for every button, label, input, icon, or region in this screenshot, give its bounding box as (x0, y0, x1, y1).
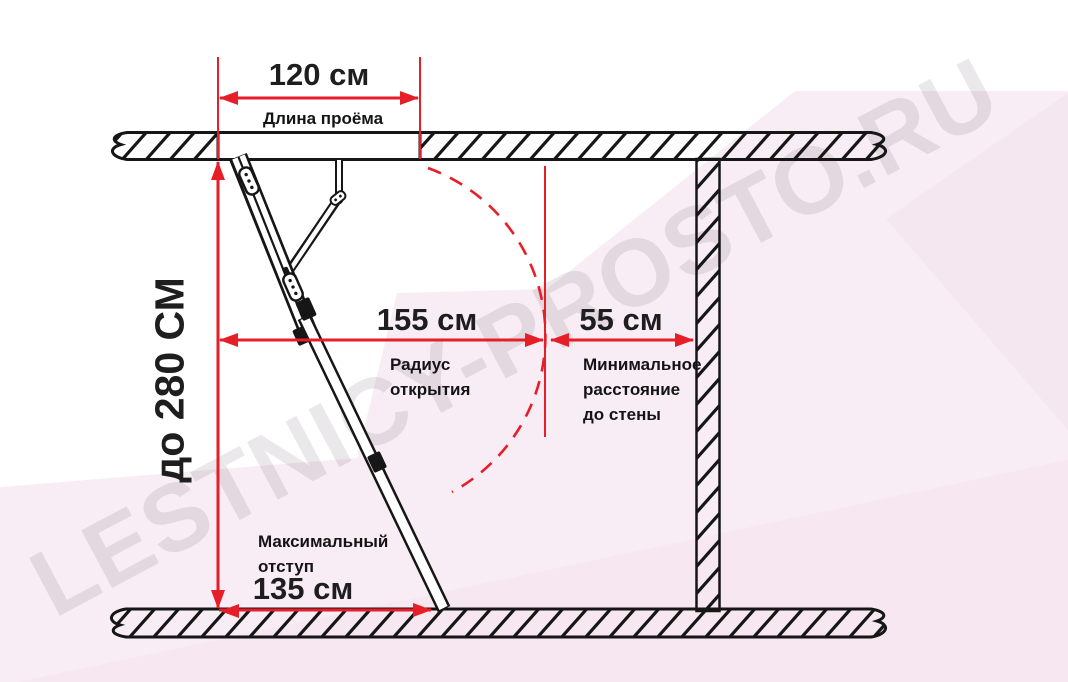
opening-label: Длина проёма (263, 106, 383, 131)
radius-label: Радиус открытия (390, 352, 470, 402)
height-value: до 280 СМ (147, 277, 194, 482)
attic-ladder-dimension-diagram: LESTNICY-PROSTO.RU (0, 0, 1068, 682)
joint-plate (329, 190, 347, 207)
radius-value: 155 см (377, 302, 478, 338)
ceiling-hatch (112, 133, 885, 160)
wall-distance-label: Минимальное расстояние до стены (583, 352, 702, 427)
wall-distance-value: 55 см (579, 302, 662, 338)
opening-box (218, 133, 420, 160)
opening-value: 120 см (269, 57, 370, 93)
max-offset-value: 135 см (253, 571, 354, 607)
ceiling-right-band (420, 133, 886, 160)
ceiling-left-band (112, 133, 218, 160)
hinge-plate-upper (237, 166, 260, 197)
